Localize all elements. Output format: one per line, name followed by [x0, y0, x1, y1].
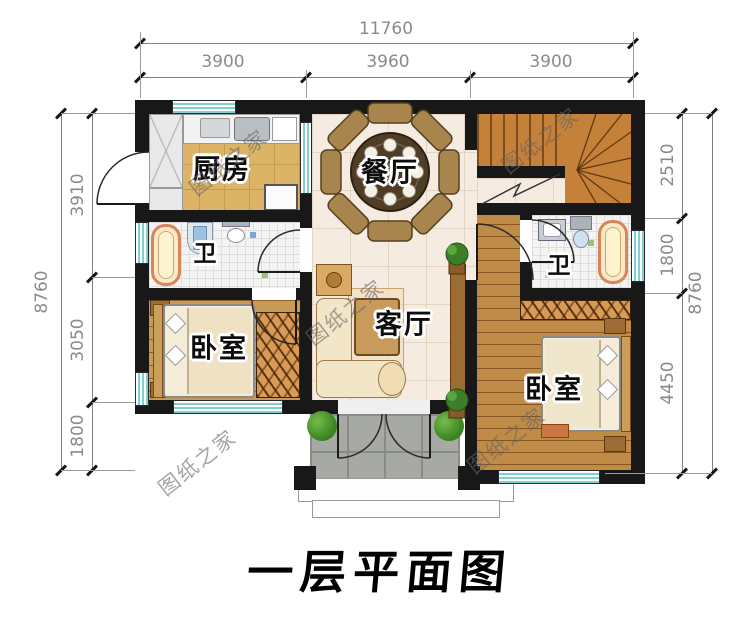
kitchen-cabinet-low: [149, 188, 183, 212]
stairs-landing-tile: [477, 178, 565, 203]
label-bath-left: 卫: [194, 234, 219, 268]
dim-top-segments-line: [140, 77, 633, 78]
window-bath-right: [631, 230, 645, 282]
porch-door-gap: [338, 400, 430, 414]
entry-door-gap: [135, 152, 149, 204]
label-bath-right: 卫: [548, 246, 573, 280]
tv-cabinet: [450, 264, 466, 396]
bush: [307, 411, 337, 441]
nightstand: [604, 436, 626, 452]
dim-right-seg-3: 4450: [658, 343, 678, 423]
window-bedroom-left-bottom: [173, 400, 283, 414]
wall-divider-left-a: [300, 114, 312, 122]
mosaic-accent: [588, 240, 594, 246]
floor-plan-page: { "title": "一层平面图", "watermark_text": "图…: [0, 0, 750, 622]
toilet-right: [570, 216, 592, 230]
wall-bathright-bottom: [520, 288, 631, 300]
dim-left-seg-2: 3050: [68, 300, 88, 380]
bath-right-door-gap: [520, 220, 532, 262]
porch-step-inner: [312, 500, 500, 518]
window-kitchen-top: [172, 100, 236, 114]
wall-right: [631, 100, 645, 484]
mosaic-accent: [250, 232, 256, 238]
dim-top-overall-line: [140, 43, 633, 44]
window-bedroom-right-bottom: [498, 470, 600, 484]
wall-divider-right-a: [465, 114, 477, 150]
label-bedroom-left: 卧室: [190, 327, 248, 366]
kitchen-appliance: [272, 117, 297, 141]
wardrobe-right: [520, 300, 631, 320]
dim-extension: [61, 113, 135, 114]
wall-bath-bedroom-a: [135, 288, 252, 300]
dim-extension: [140, 32, 141, 98]
dim-extension: [92, 277, 135, 278]
sofa-arm-round: [378, 362, 406, 396]
refrigerator: [264, 184, 298, 211]
bathtub-right-inner: [605, 227, 621, 277]
dim-extension: [92, 402, 135, 403]
kitchen-cabinet-tall: [149, 114, 183, 188]
dim-extension: [306, 70, 307, 98]
dim-top-overall: 11760: [346, 19, 426, 39]
bathtub-left-inner: [158, 231, 174, 279]
window-bath-left: [135, 222, 149, 264]
dim-left-seg-1: 3910: [68, 155, 88, 235]
dim-left-segments-line: [92, 113, 93, 470]
wall-kitchen-bath: [135, 210, 312, 222]
dim-right-seg-1: 2510: [658, 125, 678, 205]
dim-top-seg-3: 3900: [511, 52, 591, 72]
wardrobe-left: [256, 312, 300, 398]
bath-left-door-gap: [300, 228, 312, 272]
kitchen-sink-basin: [200, 118, 230, 138]
dim-right-seg-2: 1800: [658, 215, 678, 295]
dim-extension: [645, 113, 712, 114]
dim-left-seg-3: 1800: [68, 396, 88, 476]
nightstand: [604, 318, 626, 334]
dim-left-overall-line: [61, 113, 62, 470]
bed-left-headboard: [153, 304, 163, 398]
bush: [434, 411, 464, 441]
dim-extension: [633, 32, 634, 98]
dim-extension: [645, 218, 682, 219]
dim-right-overall: 8760: [686, 253, 706, 333]
dim-left-overall: 8760: [32, 252, 52, 332]
dim-right-overall-line: [712, 113, 713, 473]
window-bedroom-left-side: [135, 372, 149, 406]
watermark: 图纸之家: [152, 422, 243, 502]
dim-top-seg-1: 3900: [183, 52, 263, 72]
side-table-decor: [326, 272, 342, 288]
label-living: 客厅: [375, 303, 433, 342]
toilet-right-bowl: [573, 230, 589, 248]
dim-extension: [605, 473, 712, 474]
dim-extension: [645, 293, 682, 294]
dim-extension: [61, 470, 135, 471]
bedroom-left-door-gap: [252, 288, 296, 300]
sink-right-basin: [543, 223, 561, 237]
wall-bathright-left-b: [520, 262, 532, 288]
bed-right-headboard: [621, 336, 631, 432]
wall-stairs-bottom: [477, 203, 631, 215]
page-title: 一层平面图: [212, 536, 548, 602]
wall-bath-bedroom-b: [296, 288, 312, 300]
mosaic-accent: [262, 272, 268, 278]
window-kitchen-dining: [300, 122, 312, 194]
dim-extension: [470, 70, 471, 98]
toilet-left-bowl: [227, 228, 245, 243]
label-dining: 餐厅: [361, 151, 419, 190]
porch-pillar-left: [294, 466, 316, 490]
wall-divider-right-b: [465, 280, 477, 470]
dim-top-seg-2: 3960: [348, 52, 428, 72]
